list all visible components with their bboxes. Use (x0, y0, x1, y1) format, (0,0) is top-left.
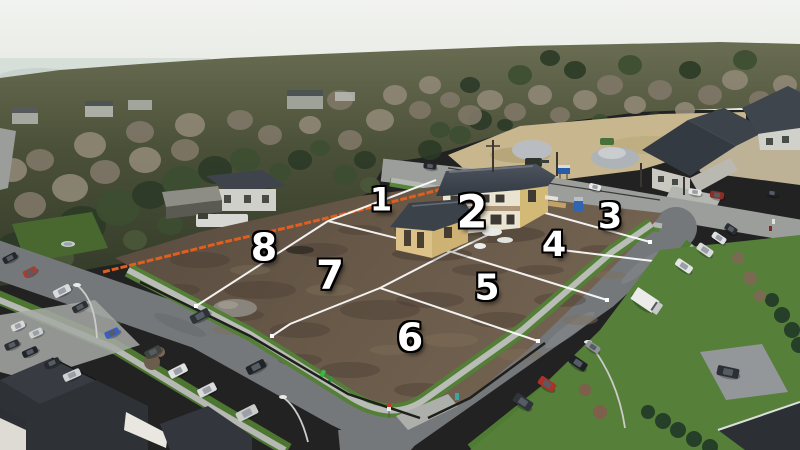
tree (333, 165, 357, 185)
tree (624, 96, 646, 114)
tree (449, 126, 471, 144)
tree (430, 122, 450, 138)
tree (230, 148, 260, 172)
tree (550, 107, 570, 123)
tree (299, 116, 321, 134)
tree (74, 132, 106, 158)
tree (418, 140, 442, 160)
tree (722, 70, 748, 90)
tree (171, 139, 199, 161)
tree (508, 65, 532, 85)
scene-canvas (0, 0, 800, 450)
no-parking-sign (387, 403, 391, 407)
utility-pole (683, 177, 685, 195)
tree (648, 80, 672, 100)
tree (129, 147, 161, 173)
utility-pole (492, 140, 494, 172)
tree (123, 230, 147, 250)
fire-hydrant (769, 226, 772, 231)
utility-box (455, 393, 459, 400)
tree (383, 85, 407, 105)
tree (338, 130, 362, 150)
tree (733, 50, 757, 70)
tree (288, 150, 312, 170)
tree (458, 105, 482, 125)
equipment-bin (198, 213, 208, 219)
tarp-pile (512, 140, 552, 160)
tree (477, 90, 503, 110)
tree (419, 76, 441, 94)
dark-debris (286, 246, 314, 254)
tree (497, 119, 513, 131)
tree (564, 61, 586, 79)
tree (528, 85, 552, 105)
utility-pole (640, 163, 642, 187)
tree (52, 174, 88, 202)
tree (26, 149, 54, 171)
tree (354, 151, 376, 169)
tree (679, 61, 701, 79)
aerial-photo: 12345678 (0, 0, 800, 450)
car (765, 189, 780, 199)
tree (360, 177, 380, 193)
tree (258, 125, 282, 145)
tree (126, 121, 154, 143)
tree (698, 85, 722, 105)
sign (772, 219, 775, 224)
tree (90, 160, 120, 184)
tree (409, 101, 431, 119)
tree (460, 77, 480, 93)
tree (540, 50, 560, 66)
tree (175, 113, 205, 137)
tree (366, 109, 394, 131)
utility-pole (556, 152, 558, 176)
tree (573, 90, 597, 110)
tree (597, 75, 623, 95)
green-machine (600, 138, 614, 145)
tree (14, 192, 46, 218)
tree (618, 55, 642, 75)
tree (440, 92, 460, 108)
tree (310, 140, 330, 156)
tree (227, 110, 253, 130)
tree (504, 103, 526, 121)
